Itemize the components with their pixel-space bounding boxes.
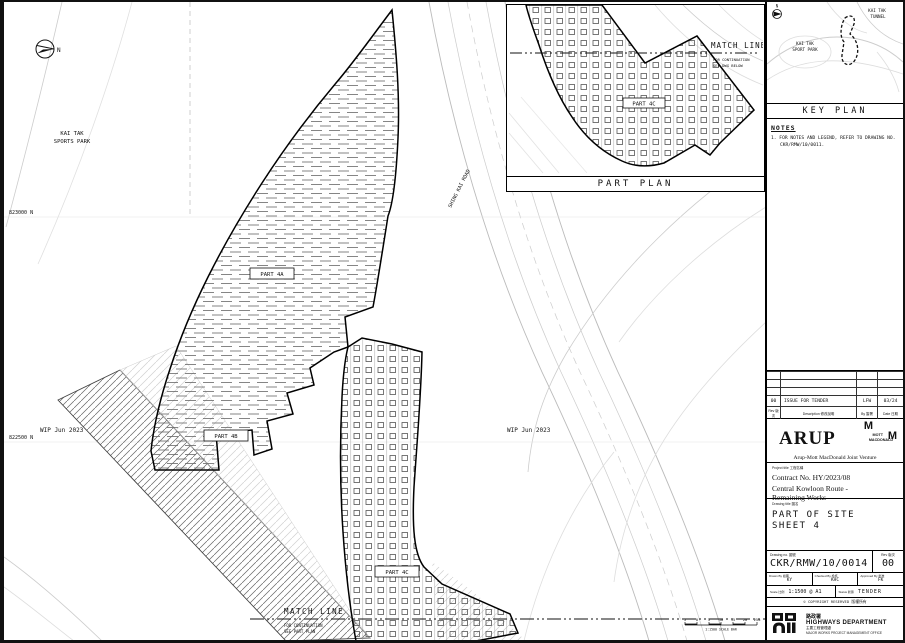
north-arrow-icon: N (36, 40, 61, 58)
shing-kai-road-label: SHING KAI ROAD (447, 169, 471, 209)
part-4a-label: PART 4A (250, 268, 294, 279)
joint-venture-label: Arup-Mott MacDonald Joint Venture (767, 455, 903, 461)
revision-row-empty (767, 371, 903, 379)
key-park-label-1: KAI TAK (796, 41, 814, 46)
project-name-line1: Central Kowloon Route - (772, 484, 898, 493)
inset-part-4c-text: PART 4C (632, 102, 655, 108)
notes-box: NOTES 1. FOR NOTES AND LEGEND, REFER TO … (767, 119, 903, 371)
drawing-title-line2: SHEET 4 (772, 521, 898, 531)
drawing-sheet: 823000 N 822500 N WIP Jun 2023 WIP Jun 2… (0, 0, 905, 643)
approved-by-cell: Approved By 批准 FK (858, 573, 903, 585)
key-plan-north-n: N (776, 4, 779, 9)
wip-watermark-left: WIP Jun 2023 (40, 427, 84, 434)
inset-match-line-note2: SEE DWG BELOW (713, 63, 743, 68)
scale-tick-6: 25m (754, 618, 761, 622)
revision-by: LFW (857, 395, 878, 406)
firm-logo-box: ARUP M MOTT MACDONALD M Arup-Mott MacDon… (767, 419, 903, 463)
notes-heading: NOTES (771, 124, 899, 132)
drawing-title-label: Drawing title 圖名 (772, 501, 898, 506)
scale-value: 1:1500 @ A1 (788, 589, 821, 595)
site-boundary-part-4c (341, 338, 518, 641)
scale-cell: Scale 比例 1:1500 @ A1 (767, 586, 836, 597)
grid-label-823000n: 823000 N (9, 210, 33, 216)
inset-match-line-note1: FOR CONTINUATION (713, 57, 750, 62)
key-plan-north-arrow-icon: N (773, 4, 782, 19)
project-title-label: Project title 工程名稱 (772, 465, 898, 470)
revision-row-00: 00 ISSUE FOR TENDER LFW 03/24 (767, 395, 903, 406)
status-cell: Status 狀態 TENDER (836, 586, 904, 597)
note-1-line2: CKR/RMW/10/0011. (771, 143, 899, 150)
drawing-number: CKR/RMW/10/0014 (770, 558, 869, 569)
north-arrow-n: N (57, 47, 61, 54)
signatures-row: Drawn By 繪圖 KY Checked By 檢核 KHC Approve… (767, 573, 903, 586)
mott-name-line1: MOTT (873, 433, 883, 437)
status-value: TENDER (858, 589, 882, 595)
part-4b-label: PART 4B (204, 430, 248, 441)
title-block-panel: N KAI TAK SPORT PARK KAI TAK TUNNEL KEY … (765, 2, 903, 640)
revision-table: 00 ISSUE FOR TENDER LFW 03/24 Rev 版次 Des… (767, 371, 903, 419)
part-plan-inset: MATCH LINE FOR CONTINUATION SEE DWG BELO… (506, 4, 765, 192)
park-label-line2: SPORTS PARK (54, 139, 91, 145)
key-plan-title: KEY PLAN (767, 103, 903, 118)
key-tunnel-label-2: TUNNEL (870, 14, 886, 19)
revision-header-by: By 簽署 (857, 406, 878, 419)
scale-tick-5: 20 (743, 618, 747, 622)
revision-header-row: Rev 版次 Description 修改說明 By 簽署 Date 日期 (767, 406, 903, 419)
approved-by-value: FK (860, 578, 901, 583)
part-4c-label-text: PART 4C (385, 570, 408, 576)
key-tunnel-label-1: KAI TAK (868, 8, 886, 13)
match-line-bottom-note1: FOR CONTINUATION (284, 623, 323, 628)
part-4a-label-text: PART 4A (260, 272, 284, 278)
department-name-en: HIGHWAYS DEPARTMENT (806, 620, 887, 626)
drawing-number-cell: Drawing no. 圖號 CKR/RMW/10/0014 (767, 551, 873, 572)
status-label: Status 狀態 (839, 590, 854, 594)
kai-tak-sports-park-label: KAI TAK SPORTS PARK (54, 131, 91, 145)
revision-date: 03/24 (878, 395, 903, 406)
mott-macdonald-m-icon: M (864, 420, 873, 432)
revision-row-empty (767, 379, 903, 387)
park-label-line1: KAI TAK (60, 131, 84, 137)
match-line-bottom-title: MATCH LINE (284, 607, 344, 616)
office-name-en: MAJOR WORKS PROJECT MANAGEMENT OFFICE (806, 631, 887, 635)
project-title-box: Project title 工程名稱 Contract No. HY/2023/… (767, 463, 903, 499)
checked-by-cell: Checked By 檢核 KHC (813, 573, 859, 585)
scale-bar: 5 0 5 10 15 20 25m 1:1500 SCALE BAR (684, 618, 760, 632)
department-text: 路政署 HIGHWAYS DEPARTMENT 主要工程管理處 MAJOR WO… (806, 613, 887, 635)
scale-tick-4: 15 (731, 618, 735, 622)
copyright-line: © COPYRIGHT RESERVED 版權所有 (767, 598, 903, 607)
mott-macdonald-m2-icon: M (888, 430, 897, 442)
rev-label: Rev 版次 (875, 552, 901, 557)
contract-number: Contract No. HY/2023/08 (772, 473, 898, 482)
arup-logo: ARUP (779, 428, 836, 450)
inset-match-line-title: MATCH LINE (711, 41, 763, 50)
key-plan-site-outline (841, 16, 858, 65)
scale-label: Scale 比例 (770, 590, 784, 594)
drawing-number-label: Drawing no. 圖號 (770, 552, 869, 557)
drawn-by-cell: Drawn By 繪圖 KY (767, 573, 813, 585)
revision-rev: 00 (767, 395, 781, 406)
department-footer: 路政署 HIGHWAYS DEPARTMENT 主要工程管理處 MAJOR WO… (767, 607, 903, 640)
part-4c-label: PART 4C (375, 566, 419, 577)
department-name-cn: 路政署 (806, 613, 887, 620)
key-plan-map: N KAI TAK SPORT PARK KAI TAK TUNNEL (767, 2, 903, 103)
scale-bar-caption: 1:1500 SCALE BAR (705, 628, 737, 632)
rev-value: 00 (875, 558, 901, 569)
checked-by-value: KHC (815, 578, 856, 583)
rev-cell: Rev 版次 00 (873, 551, 903, 572)
scale-tick-0: 5 (684, 618, 686, 622)
part-plan-title: PART PLAN (507, 176, 764, 191)
part-4b-label-text: PART 4B (214, 434, 238, 440)
scale-tick-3: 10 (719, 618, 723, 622)
drawn-by-value: KY (769, 578, 810, 583)
scale-tick-2: 5 (708, 618, 710, 622)
revision-description: ISSUE FOR TENDER (781, 395, 857, 406)
highways-department-logo-icon (771, 613, 801, 634)
inset-part-4c-label: PART 4C (623, 98, 665, 108)
revision-row-empty (767, 387, 903, 395)
drawing-title-box: Drawing title 圖名 PART OF SITE SHEET 4 (767, 499, 903, 551)
revision-header-date: Date 日期 (878, 406, 903, 419)
part-plan-map: MATCH LINE FOR CONTINUATION SEE DWG BELO… (507, 5, 763, 176)
note-1-line1: 1. FOR NOTES AND LEGEND, REFER TO DRAWIN… (771, 136, 899, 143)
drawing-title-line1: PART OF SITE (772, 510, 898, 520)
scale-tick-1: 0 (696, 618, 698, 622)
grid-label-822500n: 822500 N (9, 435, 33, 441)
revision-header-rev: Rev 版次 (767, 406, 781, 419)
revision-header-description: Description 修改說明 (781, 406, 857, 419)
key-park-label-2: SPORT PARK (792, 47, 818, 52)
scale-status-row: Scale 比例 1:1500 @ A1 Status 狀態 TENDER (767, 586, 903, 598)
drawing-number-row: Drawing no. 圖號 CKR/RMW/10/0014 Rev 版次 00 (767, 551, 903, 573)
key-plan-box: N KAI TAK SPORT PARK KAI TAK TUNNEL KEY … (767, 2, 903, 119)
match-line-bottom-note2: SEE PART PLAN (284, 629, 316, 634)
wip-watermark-right: WIP Jun 2023 (507, 427, 551, 434)
